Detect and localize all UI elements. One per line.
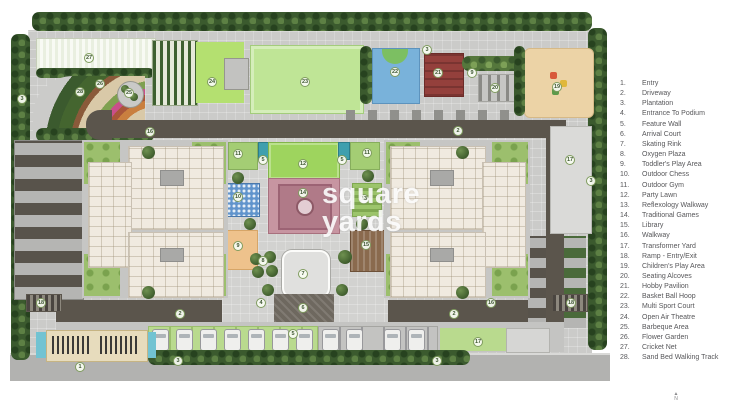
legend-item-label: Flower Garden (642, 333, 752, 343)
watermark-line1: square (322, 180, 420, 208)
legend-item-label: Children's Play Area (642, 262, 752, 272)
legend-item: 9.Toddler's Play Area (620, 160, 752, 170)
plan-marker-5: 5 (288, 329, 298, 339)
parking-right-inner (528, 236, 546, 328)
legend-item-number: 3. (620, 99, 642, 109)
roof-core (430, 170, 454, 186)
plan-marker-14: 14 (298, 188, 308, 198)
legend-item-label: Entrance To Podium (642, 109, 752, 119)
play-area-hedge (514, 46, 525, 116)
legend-item-number: 9. (620, 160, 642, 170)
legend-item-label: Outdoor Chess (642, 170, 752, 180)
plan-marker-9: 9 (467, 68, 477, 78)
legend-item-number: 8. (620, 150, 642, 160)
legend-item-label: Traditional Games (642, 211, 752, 221)
plan-marker-23: 23 (300, 77, 310, 87)
plan-marker-7: 7 (298, 269, 308, 279)
plan-marker-10: 10 (233, 192, 243, 202)
court-hedge (360, 46, 372, 104)
legend-item-number: 21. (620, 282, 642, 292)
legend-item-label: Library (642, 221, 752, 231)
legend-item-label: Basket Ball Hoop (642, 292, 752, 302)
tower-right-south (390, 232, 486, 298)
legend-item: 2.Driveway (620, 89, 752, 99)
plan-marker-4: 4 (256, 298, 266, 308)
legend-item: 12.Party Lawn (620, 191, 752, 201)
legend-item: 21.Hobby Pavilion (620, 282, 752, 292)
tower-right-east (482, 162, 526, 268)
legend-item-number: 13. (620, 201, 642, 211)
legend-item-number: 11. (620, 181, 642, 191)
tower-left-north (128, 146, 224, 230)
planter-tree (142, 286, 155, 299)
legend-item: 10.Outdoor Chess (620, 170, 752, 180)
plan-marker-28: 28 (75, 87, 85, 97)
entry-water-left (36, 332, 46, 358)
car (200, 329, 217, 351)
legend-item-label: Transformer Yard (642, 242, 752, 252)
legend-item-number: 15. (620, 221, 642, 231)
plantation-band-top (32, 12, 592, 31)
oxygen-plaza-tree (252, 266, 264, 278)
legend-item-number: 12. (620, 191, 642, 201)
legend-item-label: Toddler's Play Area (642, 160, 752, 170)
oxygen-plaza-tree (266, 265, 278, 277)
legend-item-label: Seating Alcoves (642, 272, 752, 282)
hobby-pavilion (424, 53, 464, 97)
legend-item: 15.Library (620, 221, 752, 231)
plan-marker-27: 27 (84, 53, 94, 63)
legend-item-label: Party Lawn (642, 191, 752, 201)
legend-item-number: 26. (620, 333, 642, 343)
legend-item-number: 2. (620, 89, 642, 99)
planter-tree (456, 286, 469, 299)
plan-marker-26: 26 (95, 79, 105, 89)
legend-item-number: 6. (620, 130, 642, 140)
legend-item: 3.Plantation (620, 99, 752, 109)
legend-item: 13.Reflexology Walkway (620, 201, 752, 211)
legend-item: 16.Walkway (620, 231, 752, 241)
plan-marker-2: 2 (175, 309, 185, 319)
plaza-medallion (296, 198, 314, 216)
legend-item-label: Reflexology Walkway (642, 201, 752, 211)
legend-item-number: 27. (620, 343, 642, 353)
plan-marker-15: 15 (361, 240, 371, 250)
legend-item-number: 22. (620, 292, 642, 302)
watermark: square yards (322, 180, 420, 236)
legend-item: 8.Oxygen Plaza (620, 150, 752, 160)
master-plan: 2728262531624232232192019217311512511101… (0, 0, 615, 419)
plan-marker-17: 17 (565, 155, 575, 165)
legend-item: 26.Flower Garden (620, 333, 752, 343)
legend-item-label: Ramp - Entry/Exit (642, 252, 752, 262)
car (224, 329, 241, 351)
plan-marker-5: 5 (337, 155, 347, 165)
outdoor-chess (226, 183, 260, 217)
tree (232, 172, 244, 184)
play-equipment (550, 72, 557, 79)
legend-item-number: 14. (620, 211, 642, 221)
plan-marker-16: 16 (486, 298, 496, 308)
legend-item: 22.Basket Ball Hoop (620, 292, 752, 302)
legend-item: 1.Entry (620, 79, 752, 89)
legend-item: 11.Outdoor Gym (620, 181, 752, 191)
tree (336, 284, 348, 296)
legend-item-label: Skating Rink (642, 140, 752, 150)
legend-item-number: 7. (620, 140, 642, 150)
legend-item-number: 25. (620, 323, 642, 333)
legend-item: 4.Entrance To Podium (620, 109, 752, 119)
car (272, 329, 289, 351)
parking-hedge-row (148, 350, 470, 365)
plan-marker-18: 18 (36, 298, 46, 308)
walkway-curve (86, 110, 112, 140)
north-arrow: ▲ N (666, 392, 686, 402)
legend-item: 28.Sand Bed Walking Track (620, 353, 752, 363)
legend-item-label: Walkway (642, 231, 752, 241)
plan-marker-1: 1 (75, 362, 85, 372)
legend-item: 24.Open Air Theatre (620, 313, 752, 323)
legend-item-number: 16. (620, 231, 642, 241)
legend-item: 14.Traditional Games (620, 211, 752, 221)
car (408, 329, 425, 351)
open-air-theatre-steps (152, 40, 198, 106)
legend-item-label: Outdoor Gym (642, 181, 752, 191)
legend-item-number: 20. (620, 272, 642, 282)
driveway-top (88, 120, 566, 138)
legend-item-label: Open Air Theatre (642, 313, 752, 323)
legend-item-number: 10. (620, 170, 642, 180)
transformer-pads (506, 328, 550, 353)
legend-item-number: 24. (620, 313, 642, 323)
plan-marker-11: 11 (362, 148, 372, 158)
tower-left-west (88, 162, 132, 268)
planter-tree (456, 146, 469, 159)
parking-right-outer (564, 236, 586, 328)
plan-marker-5: 5 (258, 155, 268, 165)
legend-item: 5.Feature Wall (620, 120, 752, 130)
plan-marker-11: 11 (233, 149, 243, 159)
car (346, 329, 363, 351)
legend-item-label: Entry (642, 79, 752, 89)
plan-marker-6: 6 (298, 303, 308, 313)
car (176, 329, 193, 351)
legend-item: 17.Transformer Yard (620, 242, 752, 252)
legend-list: 1.Entry2.Driveway3.Plantation4.Entrance … (620, 79, 752, 363)
roof-core (430, 248, 454, 262)
plan-marker-2: 2 (453, 126, 463, 136)
legend-item-number: 1. (620, 79, 642, 89)
legend-item-label: Sand Bed Walking Track (642, 353, 752, 363)
plan-marker-16: 16 (145, 127, 155, 137)
north-label: N (666, 397, 686, 402)
plan-marker-2: 2 (449, 309, 459, 319)
watermark-line2: yards (322, 208, 420, 236)
entry-gate-grille (52, 336, 92, 354)
car (322, 329, 339, 351)
legend-item-label: Driveway (642, 89, 752, 99)
plan-marker-17: 17 (473, 337, 483, 347)
plan-marker-3: 3 (586, 176, 596, 186)
plan-marker-19: 19 (552, 82, 562, 92)
plan-marker-3: 3 (422, 45, 432, 55)
site-plan-page: 2728262531624232232192019217311512511101… (0, 0, 755, 419)
legend-item: 20.Seating Alcoves (620, 272, 752, 282)
plan-marker-18: 18 (566, 298, 576, 308)
legend-item: 27.Cricket Net (620, 343, 752, 353)
legend-item-number: 28. (620, 353, 642, 363)
legend-item-label: Feature Wall (642, 120, 752, 130)
legend-item-label: Oxygen Plaza (642, 150, 752, 160)
car (248, 329, 265, 351)
legend-item-label: Hobby Pavilion (642, 282, 752, 292)
tree (244, 218, 256, 230)
legend-item: 23.Multi Sport Court (620, 302, 752, 312)
plan-marker-22: 22 (390, 67, 400, 77)
theatre-stage (224, 58, 249, 90)
planter-tree (142, 146, 155, 159)
plan-marker-20: 20 (490, 83, 500, 93)
parking-left (14, 140, 84, 300)
legend: 1.Entry2.Driveway3.Plantation4.Entrance … (620, 79, 752, 363)
plan-marker-21: 21 (433, 68, 443, 78)
plan-marker-25: 25 (124, 88, 134, 98)
plan-marker-3: 3 (432, 356, 442, 366)
plan-marker-8: 8 (258, 256, 268, 266)
roof-core (160, 170, 184, 186)
car (296, 329, 313, 351)
legend-item-label: Arrival Court (642, 130, 752, 140)
legend-item-number: 23. (620, 302, 642, 312)
plan-marker-3: 3 (173, 356, 183, 366)
legend-item-number: 4. (620, 109, 642, 119)
legend-item-number: 5. (620, 120, 642, 130)
plan-marker-3: 3 (17, 94, 27, 104)
legend-item: 6.Arrival Court (620, 130, 752, 140)
legend-item: 25.Barbeque Area (620, 323, 752, 333)
legend-item-number: 19. (620, 262, 642, 272)
roof-core (160, 248, 184, 262)
legend-item: 19.Children's Play Area (620, 262, 752, 272)
legend-item-label: Cricket Net (642, 343, 752, 353)
entry-gate-grille (100, 336, 140, 354)
plan-marker-24: 24 (207, 77, 217, 87)
plan-marker-12: 12 (298, 159, 308, 169)
legend-item: 18.Ramp - Entry/Exit (620, 252, 752, 262)
legend-item-label: Plantation (642, 99, 752, 109)
legend-item-label: Barbeque Area (642, 323, 752, 333)
legend-item: 7.Skating Rink (620, 140, 752, 150)
legend-item-label: Multi Sport Court (642, 302, 752, 312)
tree (338, 250, 352, 264)
tree (262, 284, 274, 296)
car (384, 329, 401, 351)
legend-item-number: 18. (620, 252, 642, 262)
plan-marker-9: 9 (233, 241, 243, 251)
legend-item-number: 17. (620, 242, 642, 252)
